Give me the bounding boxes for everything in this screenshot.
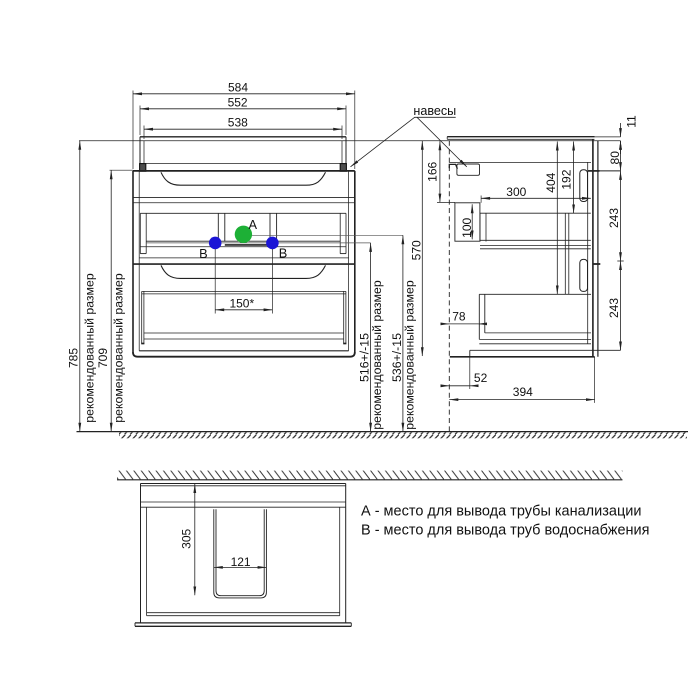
svg-text:570: 570	[409, 240, 423, 260]
svg-text:А - место для вывода трубы кан: А - место для вывода трубы канализации	[361, 504, 641, 520]
svg-text:538: 538	[228, 116, 248, 130]
svg-text:709: 709	[96, 348, 110, 368]
svg-text:11: 11	[624, 115, 638, 128]
svg-text:584: 584	[228, 80, 248, 94]
svg-text:рекомендованный размер: рекомендованный размер	[111, 273, 125, 423]
svg-text:рекомендованный размер: рекомендованный размер	[370, 280, 384, 430]
svg-text:243: 243	[607, 208, 621, 228]
svg-text:рекомендованный размер: рекомендованный размер	[402, 280, 416, 430]
svg-text:рекомендованный размер: рекомендованный размер	[83, 273, 97, 423]
svg-text:394: 394	[513, 385, 533, 399]
svg-text:404: 404	[544, 172, 558, 192]
svg-text:785: 785	[67, 348, 81, 368]
svg-text:B: B	[199, 246, 208, 261]
svg-text:300: 300	[506, 185, 526, 199]
svg-text:552: 552	[228, 95, 248, 109]
svg-text:A: A	[249, 217, 258, 232]
svg-text:121: 121	[231, 555, 251, 569]
svg-text:166: 166	[425, 161, 439, 181]
svg-text:192: 192	[560, 169, 574, 189]
svg-text:150*: 150*	[229, 297, 254, 311]
svg-text:В - место для вывода труб водо: В - место для вывода труб водоснабжения	[361, 523, 649, 539]
svg-text:52: 52	[474, 371, 488, 385]
svg-text:100: 100	[460, 217, 474, 237]
svg-text:78: 78	[452, 309, 466, 323]
svg-text:навесы: навесы	[413, 104, 456, 118]
svg-text:80: 80	[608, 151, 622, 165]
svg-text:243: 243	[607, 298, 621, 318]
svg-text:305: 305	[180, 528, 194, 548]
